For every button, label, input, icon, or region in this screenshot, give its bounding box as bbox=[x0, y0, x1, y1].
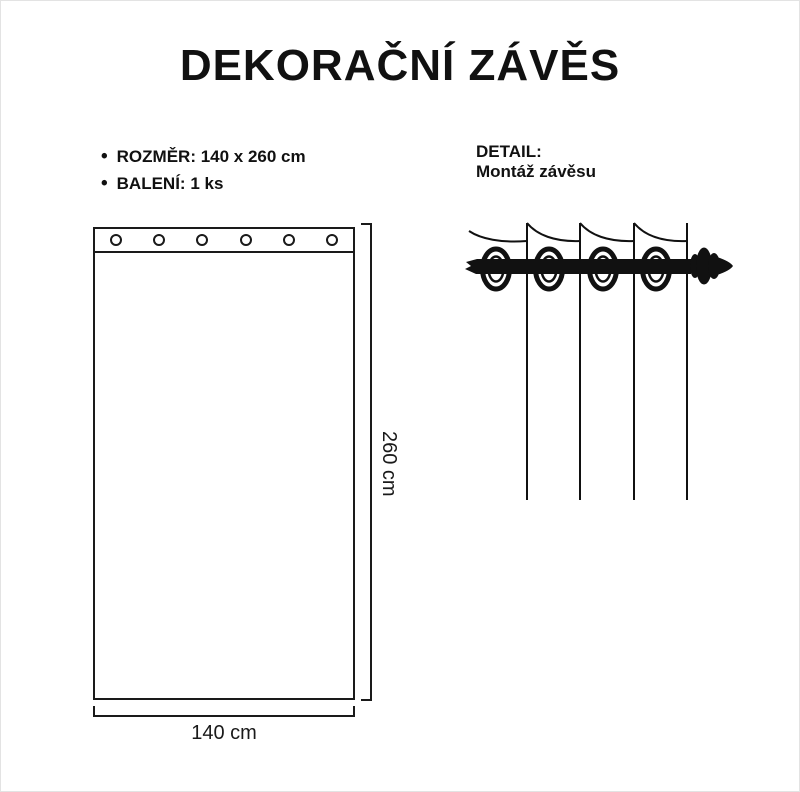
detail-heading-block: DETAIL: Montáž závěsu bbox=[476, 142, 596, 182]
detail-heading: DETAIL: bbox=[476, 142, 596, 162]
grommet-hole bbox=[326, 234, 338, 246]
width-dimension-line bbox=[93, 715, 355, 717]
fabric-top-curve bbox=[527, 223, 580, 241]
spec-size-label: ROZMĚR: 140 x 260 cm bbox=[117, 143, 306, 170]
width-dimension-tick-right bbox=[353, 706, 355, 717]
grommet-band bbox=[95, 229, 353, 253]
curtain-rod bbox=[465, 259, 691, 274]
width-dimension-label: 140 cm bbox=[93, 722, 355, 745]
fabric-top-curve bbox=[634, 223, 687, 241]
spec-item-size: • ROZMĚR: 140 x 260 cm bbox=[101, 143, 306, 170]
detail-subheading: Montáž závěsu bbox=[476, 162, 596, 182]
page-title: DEKORAČNÍ ZÁVĚS bbox=[1, 41, 799, 91]
mounting-detail-drawing bbox=[451, 209, 751, 509]
spec-package-label: BALENÍ: 1 ks bbox=[117, 170, 224, 197]
grommet-hole bbox=[240, 234, 252, 246]
height-dimension-tick-bottom bbox=[361, 699, 372, 701]
bullet-icon: • bbox=[101, 170, 108, 197]
width-dimension-tick-left bbox=[93, 706, 95, 717]
grommet-hole bbox=[196, 234, 208, 246]
curtain-front-diagram bbox=[93, 227, 355, 700]
fabric-top-curve bbox=[469, 231, 527, 242]
product-spec-sheet: DEKORAČNÍ ZÁVĚS • ROZMĚR: 140 x 260 cm •… bbox=[0, 0, 800, 792]
grommet-hole bbox=[283, 234, 295, 246]
spec-list: • ROZMĚR: 140 x 260 cm • BALENÍ: 1 ks bbox=[101, 143, 306, 197]
fabric-top-curve bbox=[580, 223, 634, 241]
spec-item-package: • BALENÍ: 1 ks bbox=[101, 170, 306, 197]
bullet-icon: • bbox=[101, 143, 108, 170]
height-dimension-label: 260 cm bbox=[377, 431, 400, 497]
grommet-hole bbox=[153, 234, 165, 246]
grommet-hole bbox=[110, 234, 122, 246]
height-dimension-tick-top bbox=[361, 223, 372, 225]
height-dimension-line bbox=[370, 223, 372, 701]
rod-finial bbox=[690, 248, 733, 285]
